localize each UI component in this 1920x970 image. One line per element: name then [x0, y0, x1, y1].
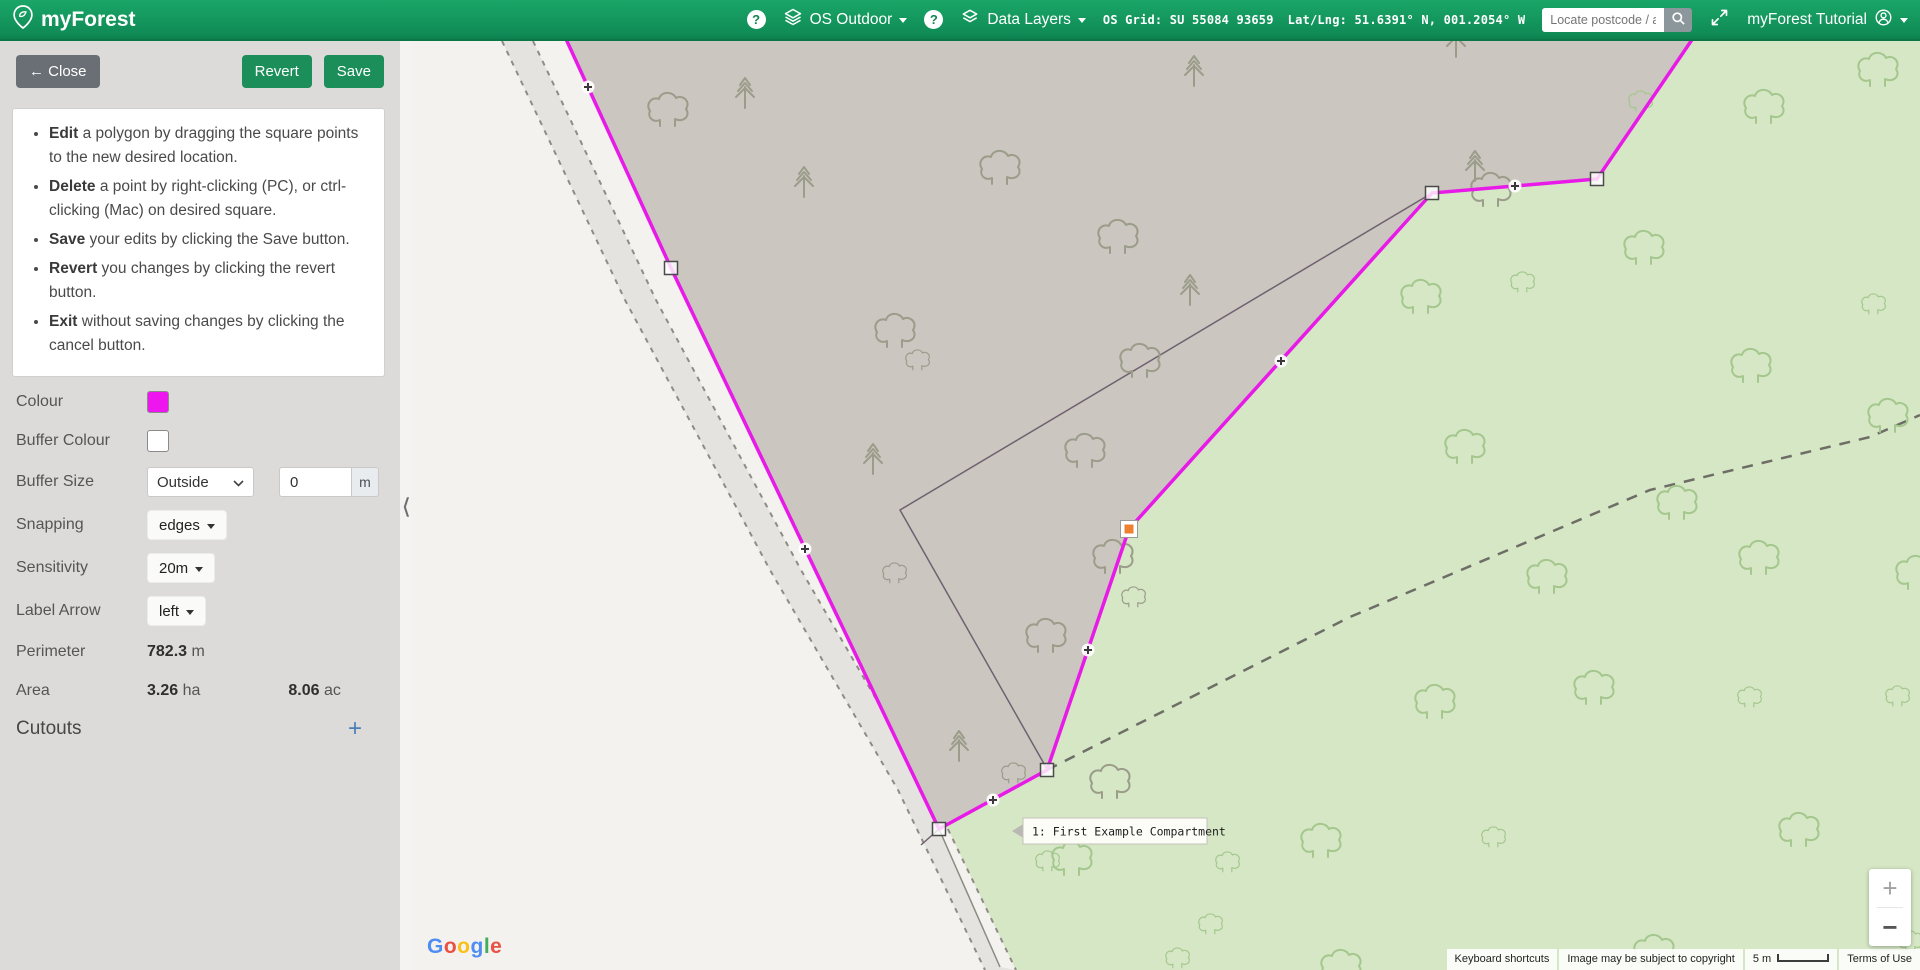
sensitivity-dropdown[interactable]: 20m [147, 553, 215, 583]
area-acres: 8.06 ac [288, 682, 341, 700]
user-circle-icon [1874, 8, 1893, 32]
snapping-label: Snapping [16, 516, 147, 534]
search-input[interactable] [1542, 8, 1664, 32]
copyright-notice: Image may be subject to copyright [1559, 949, 1743, 970]
top-navbar: myForest ? OS Outdoor ? Data Layers OS [0, 0, 1920, 41]
map-zoom-control: + − [1869, 869, 1911, 946]
sensitivity-label: Sensitivity [16, 559, 147, 577]
midpoint-handle[interactable] [1275, 355, 1288, 368]
vertex-handle[interactable] [1041, 764, 1054, 777]
app-logo[interactable]: myForest [12, 4, 136, 36]
chevron-down-icon [1078, 18, 1086, 23]
colour-swatch[interactable] [147, 391, 169, 413]
sidebar-collapse-handle[interactable]: ❮ [400, 41, 412, 970]
data-layers-icon [960, 7, 980, 32]
instruction-item: Revert you changes by clicking the rever… [49, 257, 370, 305]
zoom-in-button[interactable]: + [1869, 869, 1911, 907]
label-arrow-dropdown[interactable]: left [147, 596, 206, 626]
area-hectares: 3.26 ha [147, 682, 200, 700]
basemap-help-icon[interactable]: ? [747, 10, 766, 29]
chevron-down-icon [1900, 18, 1908, 23]
midpoint-handle[interactable] [799, 543, 812, 556]
fullscreen-expand-icon [1709, 7, 1730, 33]
midpoint-handle[interactable] [987, 794, 1000, 807]
midpoint-handle[interactable] [1082, 644, 1095, 657]
buffer-colour-label: Buffer Colour [16, 432, 147, 450]
perimeter-value: 782.3 m [147, 643, 205, 661]
buffer-size-label: Buffer Size [16, 473, 147, 491]
instruction-item: Exit without saving changes by clicking … [49, 310, 370, 358]
postcode-search [1542, 8, 1692, 32]
brand-name: myForest [41, 8, 136, 32]
label-arrow-label: Label Arrow [16, 602, 147, 620]
instruction-item: Delete a point by right-clicking (PC), o… [49, 175, 370, 223]
area-label: Area [16, 682, 147, 700]
basemap-label: OS Outdoor [810, 11, 893, 29]
chevron-down-icon [207, 524, 215, 529]
os-grid-value: OS Grid: SU 55084 93659 [1103, 13, 1274, 27]
edit-instructions-card: Edit a polygon by dragging the square po… [12, 108, 385, 377]
map-pin-leaf-icon [12, 4, 34, 36]
terms-of-use-link[interactable]: Terms of Use [1839, 949, 1920, 970]
buffer-colour-swatch[interactable] [147, 430, 169, 452]
vertex-handle[interactable] [665, 262, 678, 275]
midpoint-handle[interactable] [582, 81, 595, 94]
back-arrow-icon: ← [29, 63, 44, 80]
zoom-out-button[interactable]: − [1869, 908, 1911, 946]
chevron-down-icon [186, 610, 194, 615]
instruction-item: Save your edits by clicking the Save but… [49, 228, 370, 252]
search-icon [1671, 11, 1686, 29]
selected-vertex-fill [1125, 525, 1134, 534]
collapse-chevron-icon: ❮ [402, 494, 410, 518]
snapping-dropdown[interactable]: edges [147, 510, 227, 540]
colour-label: Colour [16, 393, 147, 411]
edit-polygon-panel: ← Close Revert Save Edit a polygon by dr… [0, 41, 400, 970]
chevron-down-icon [233, 474, 244, 491]
compartment-label-text: 1: First Example Compartment [1032, 825, 1226, 839]
vertex-handle[interactable] [933, 823, 946, 836]
basemap-dropdown[interactable]: OS Outdoor [783, 7, 908, 32]
buffer-size-input[interactable] [279, 467, 352, 497]
account-label: myForest Tutorial [1747, 11, 1867, 29]
save-button[interactable]: Save [324, 55, 384, 88]
account-menu[interactable]: myForest Tutorial [1747, 8, 1908, 32]
map-viewport[interactable]: 1: First Example Compartment Google Keyb… [412, 41, 1920, 970]
close-button[interactable]: ← Close [16, 55, 100, 88]
map-footer-bar: Keyboard shortcuts Image may be subject … [1447, 949, 1920, 970]
map-scale: 5 m [1745, 949, 1837, 970]
keyboard-shortcuts-link[interactable]: Keyboard shortcuts [1447, 949, 1558, 970]
cutouts-label: Cutouts [16, 718, 81, 740]
latlng-value: Lat/Lng: 51.6391° N, 001.2054° W [1288, 13, 1526, 27]
google-logo: Google [427, 935, 502, 959]
add-cutout-button[interactable]: + [348, 717, 362, 741]
data-layers-help-icon[interactable]: ? [924, 10, 943, 29]
buffer-size-unit: m [352, 467, 379, 497]
vertex-handle[interactable] [1426, 187, 1439, 200]
vertex-handle[interactable] [1591, 173, 1604, 186]
chevron-down-icon [195, 567, 203, 572]
map-canvas[interactable]: 1: First Example Compartment [412, 41, 1920, 970]
midpoint-handle[interactable] [1509, 180, 1522, 193]
revert-button[interactable]: Revert [242, 55, 312, 88]
chevron-down-icon [899, 18, 907, 23]
buffer-mode-select[interactable]: Outside [147, 467, 254, 497]
data-layers-label: Data Layers [987, 11, 1071, 29]
instruction-item: Edit a polygon by dragging the square po… [49, 122, 370, 170]
perimeter-label: Perimeter [16, 643, 147, 661]
coordinate-readout: OS Grid: SU 55084 93659 Lat/Lng: 51.6391… [1103, 13, 1525, 27]
layers-stack-icon [783, 7, 803, 32]
scale-bar [1777, 954, 1829, 962]
data-layers-dropdown[interactable]: Data Layers [960, 7, 1086, 32]
fullscreen-button[interactable] [1709, 7, 1730, 33]
search-button[interactable] [1664, 8, 1692, 32]
